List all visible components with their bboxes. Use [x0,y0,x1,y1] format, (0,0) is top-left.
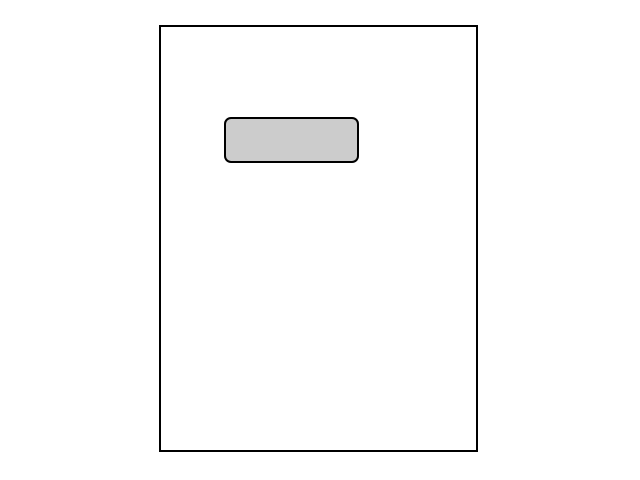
gray-placeholder-box [224,117,359,163]
canvas-background [0,0,640,480]
page-outline [159,25,478,452]
